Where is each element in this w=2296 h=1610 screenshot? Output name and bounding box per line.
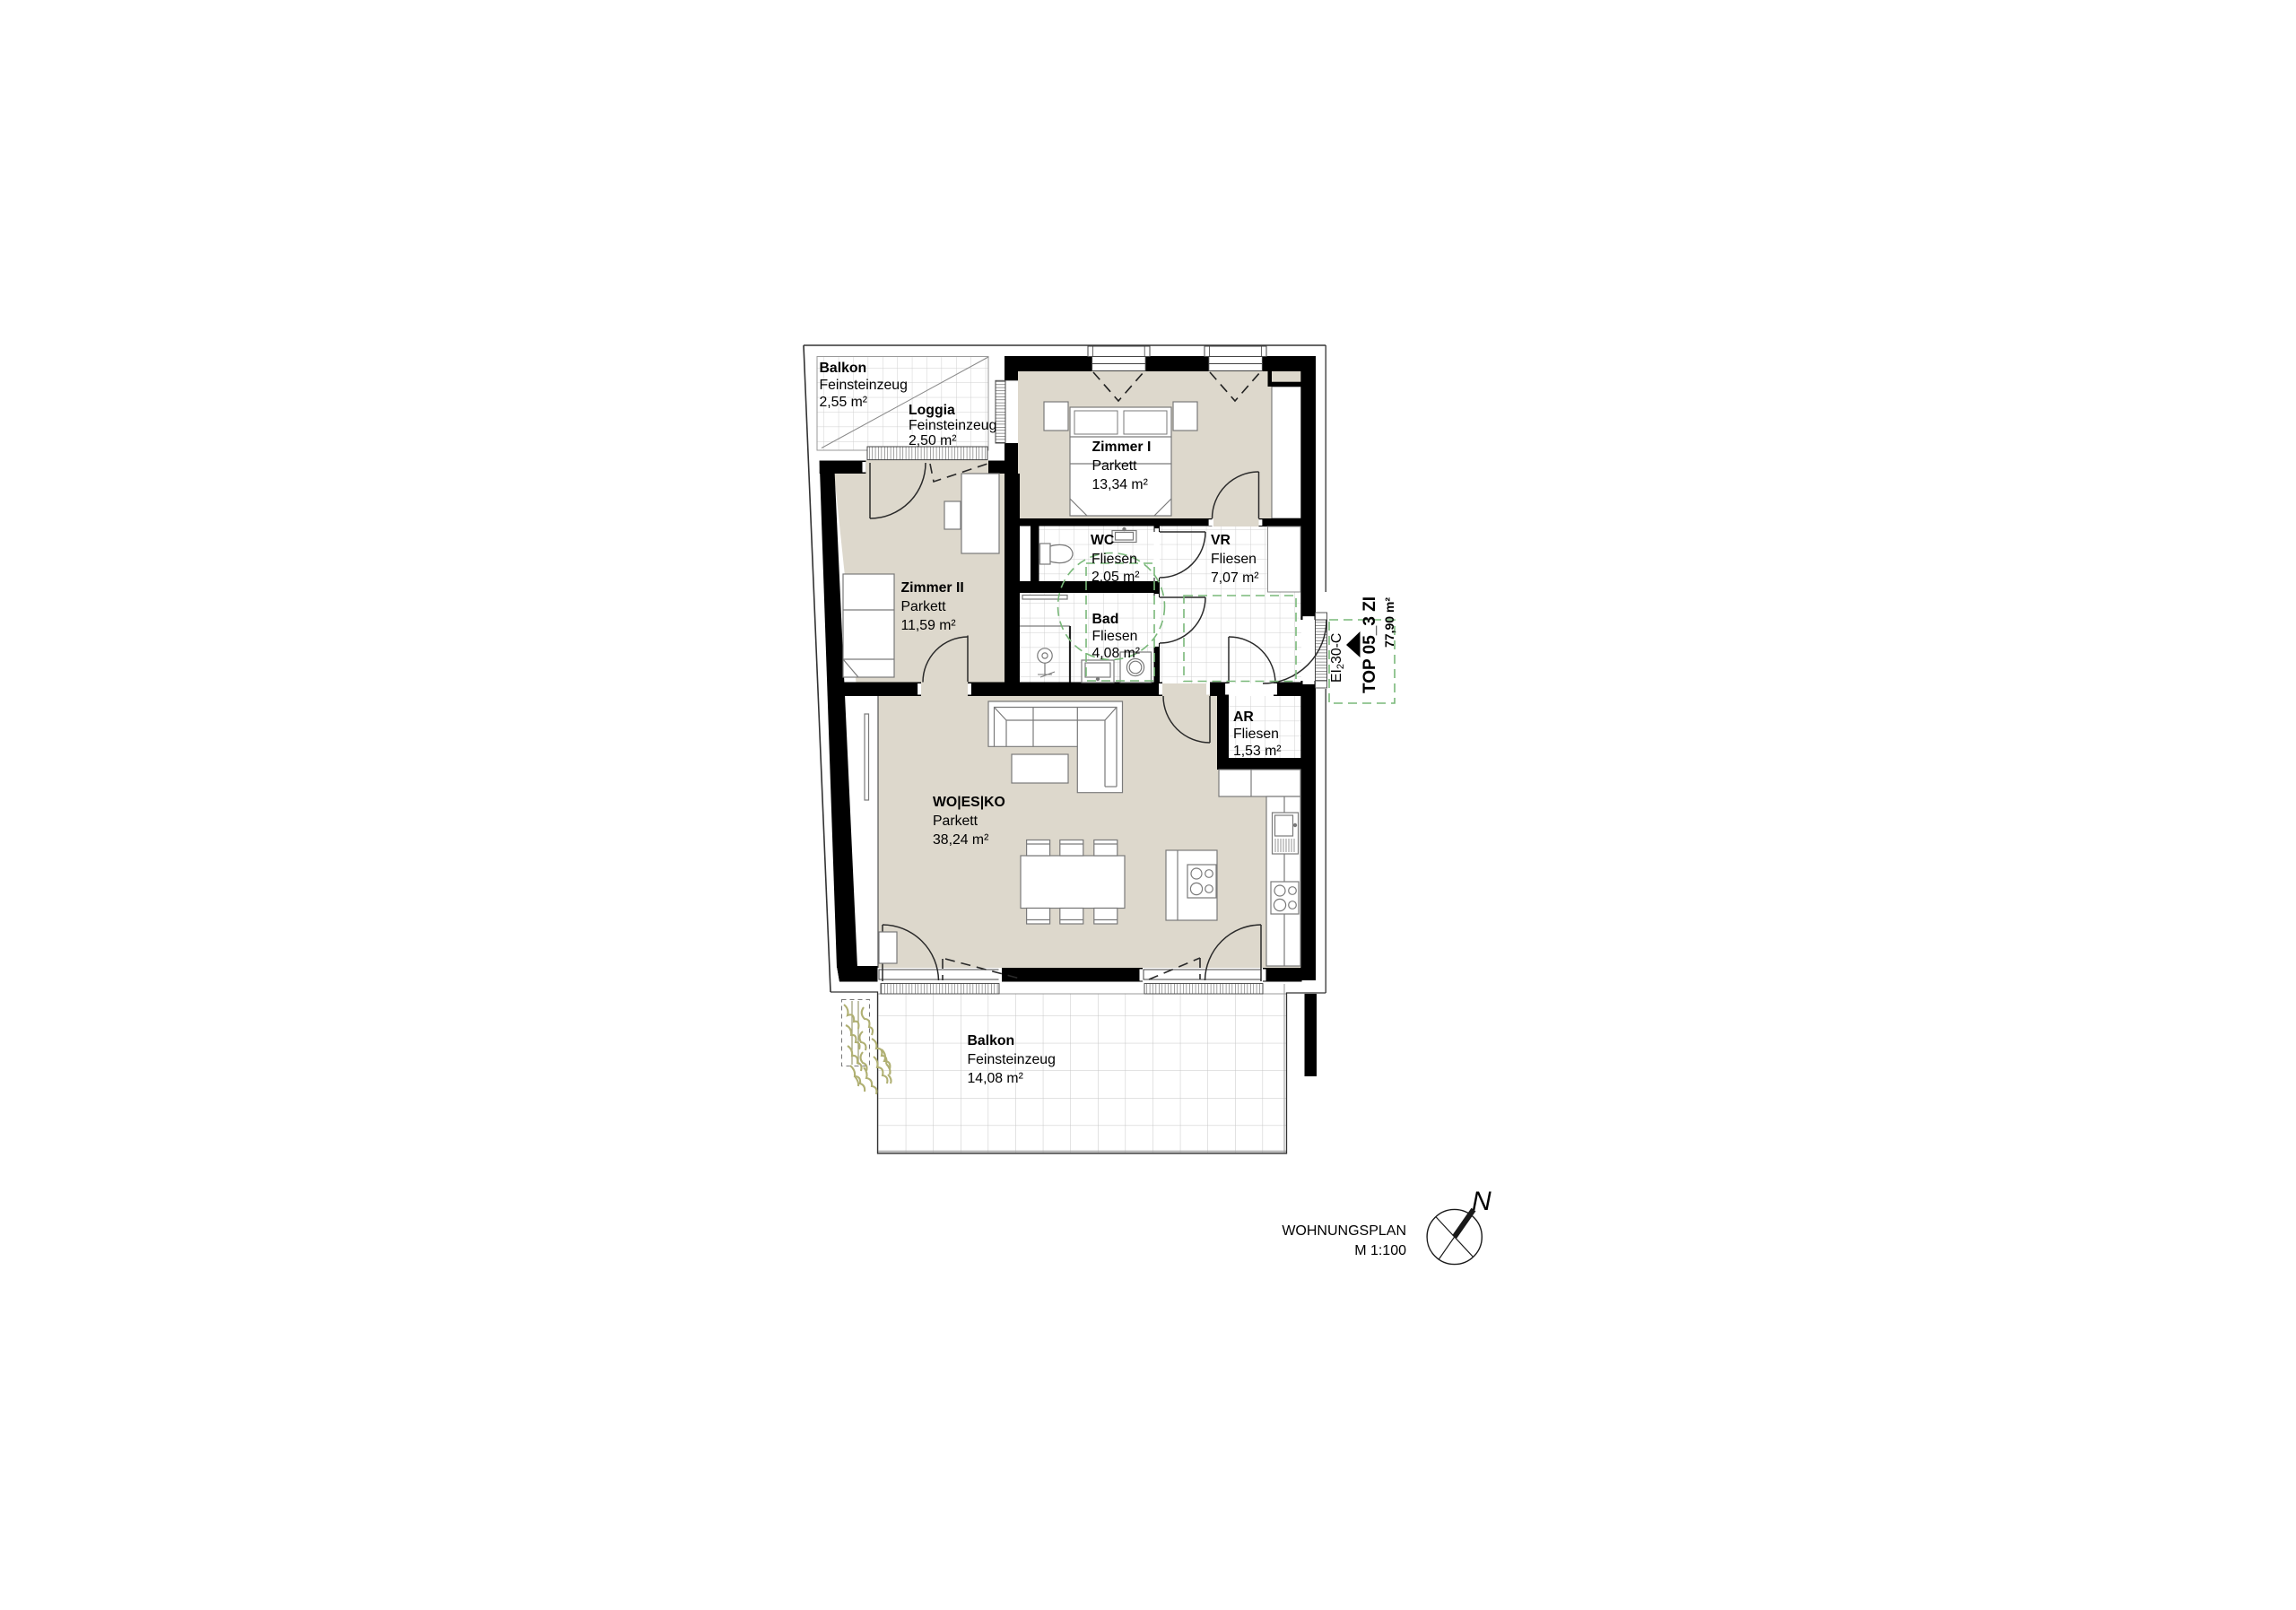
- svg-text:Parkett: Parkett: [1092, 458, 1138, 474]
- svg-text:WC: WC: [1091, 533, 1114, 548]
- svg-text:Loggia: Loggia: [909, 403, 955, 418]
- svg-text:2,05 m²: 2,05 m²: [1091, 570, 1140, 585]
- svg-text:11,59 m²: 11,59 m²: [901, 618, 956, 633]
- svg-text:M 1:100: M 1:100: [1354, 1243, 1406, 1258]
- svg-text:7,07 m²: 7,07 m²: [1211, 570, 1259, 586]
- svg-text:13,34 m²: 13,34 m²: [1092, 477, 1148, 492]
- svg-text:Zimmer I: Zimmer I: [1092, 439, 1152, 455]
- svg-text:EI230-C: EI230-C: [1329, 633, 1346, 683]
- svg-text:2,50 m²: 2,50 m²: [909, 433, 957, 448]
- svg-text:Fliesen: Fliesen: [1211, 552, 1257, 567]
- svg-text:N: N: [1472, 1187, 1492, 1216]
- svg-text:Parkett: Parkett: [933, 814, 978, 829]
- svg-text:Zimmer II: Zimmer II: [901, 580, 964, 596]
- svg-text:4,08 m²: 4,08 m²: [1092, 646, 1141, 661]
- svg-text:Parkett: Parkett: [901, 599, 947, 614]
- svg-text:77,90 m²: 77,90 m²: [1382, 597, 1396, 648]
- svg-text:14,08 m²: 14,08 m²: [968, 1071, 1023, 1086]
- svg-text:Feinsteinzeug: Feinsteinzeug: [820, 378, 908, 393]
- svg-text:VR: VR: [1211, 533, 1231, 548]
- svg-text:Bad: Bad: [1092, 612, 1119, 627]
- svg-text:1,53 m²: 1,53 m²: [1233, 744, 1282, 759]
- svg-text:WO|ES|KO: WO|ES|KO: [933, 795, 1005, 810]
- svg-text:Feinsteinzeug: Feinsteinzeug: [909, 418, 996, 433]
- svg-text:Fliesen: Fliesen: [1091, 552, 1137, 567]
- svg-text:Feinsteinzeug: Feinsteinzeug: [968, 1052, 1056, 1067]
- svg-text:AR: AR: [1233, 709, 1254, 725]
- svg-text:Balkon: Balkon: [820, 361, 867, 376]
- svg-text:38,24 m²: 38,24 m²: [933, 832, 988, 848]
- svg-text:Balkon: Balkon: [968, 1033, 1015, 1049]
- svg-text:TOP 05_3 ZI: TOP 05_3 ZI: [1361, 596, 1379, 693]
- svg-text:WOHNUNGSPLAN: WOHNUNGSPLAN: [1282, 1223, 1406, 1239]
- svg-text:Fliesen: Fliesen: [1092, 629, 1138, 644]
- svg-text:Fliesen: Fliesen: [1233, 727, 1279, 742]
- svg-text:2,55 m²: 2,55 m²: [820, 395, 868, 410]
